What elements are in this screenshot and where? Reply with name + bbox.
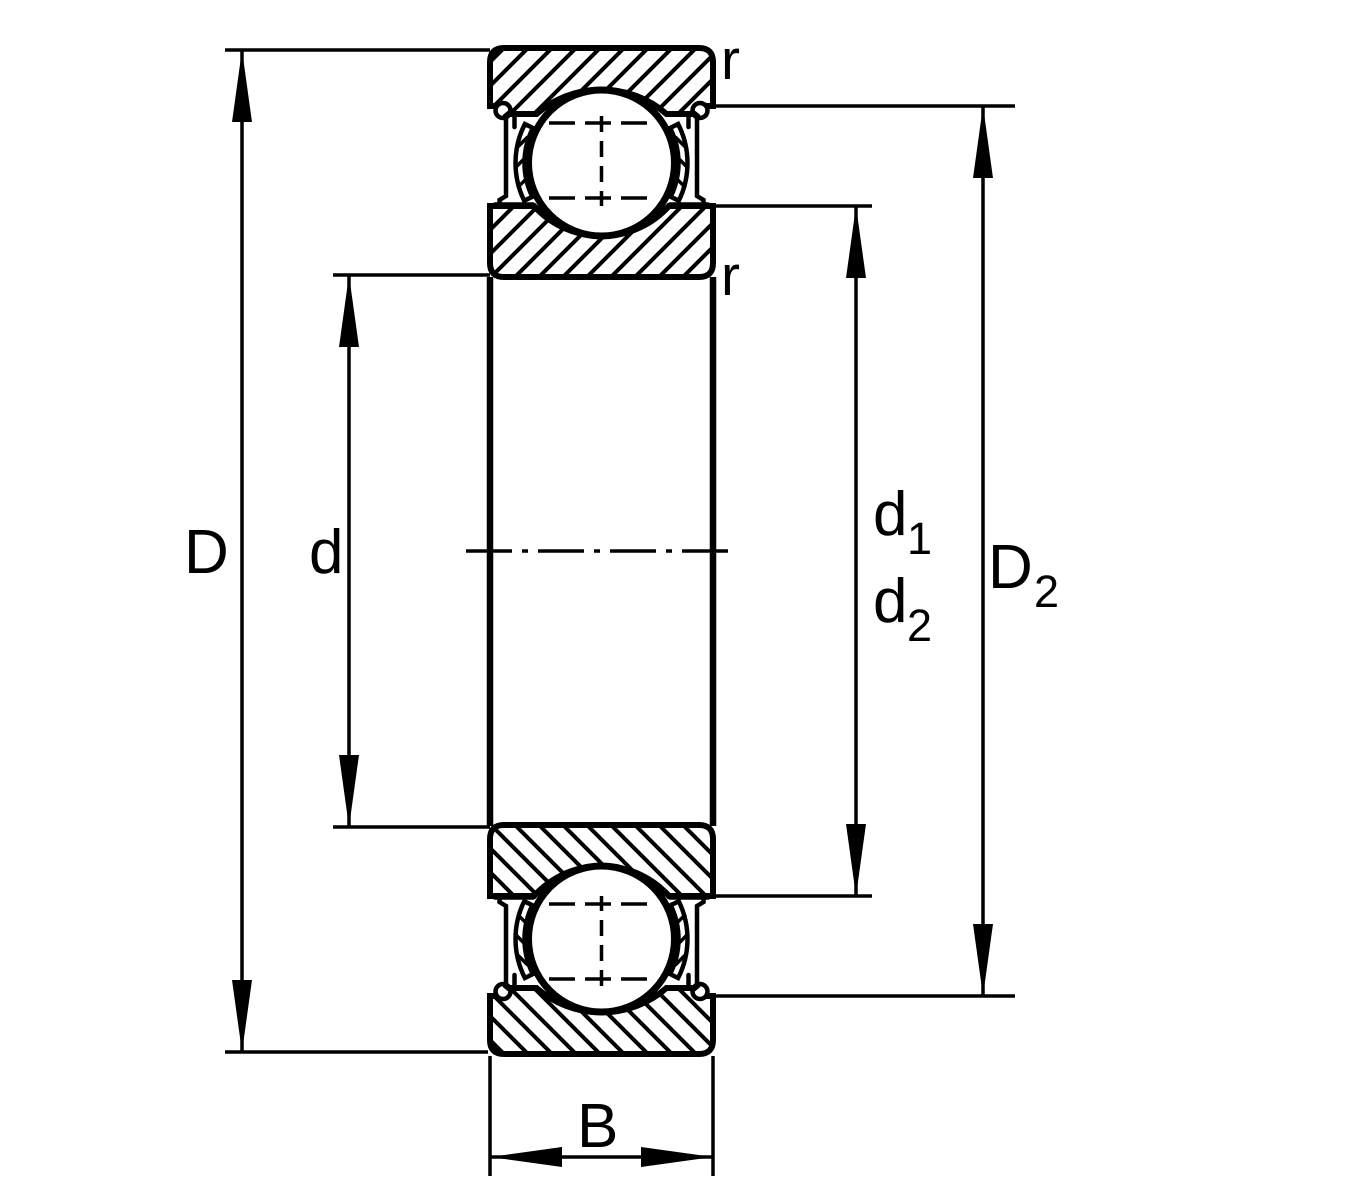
label-d1: d (873, 480, 907, 549)
top-bearing-section (490, 48, 713, 277)
bottom-bearing-section (490, 825, 713, 1054)
bearing-cross-section-svg: D d d 1 d 2 D 2 B r r (0, 0, 1350, 1200)
ball (529, 90, 675, 236)
bearing-dimension-diagram: D d d 1 d 2 D 2 B r r (0, 0, 1350, 1200)
label-d2: d (873, 567, 907, 636)
label-B: B (577, 1092, 618, 1161)
label-d: d (309, 518, 343, 587)
label-D2-sub: 2 (1034, 566, 1059, 617)
label-r-top: r (721, 28, 740, 92)
label-d1-sub: 1 (907, 513, 932, 564)
label-D: D (184, 518, 229, 587)
label-d2-sub: 2 (907, 600, 932, 651)
label-r-bottom: r (721, 244, 740, 308)
label-D2: D (988, 533, 1033, 602)
